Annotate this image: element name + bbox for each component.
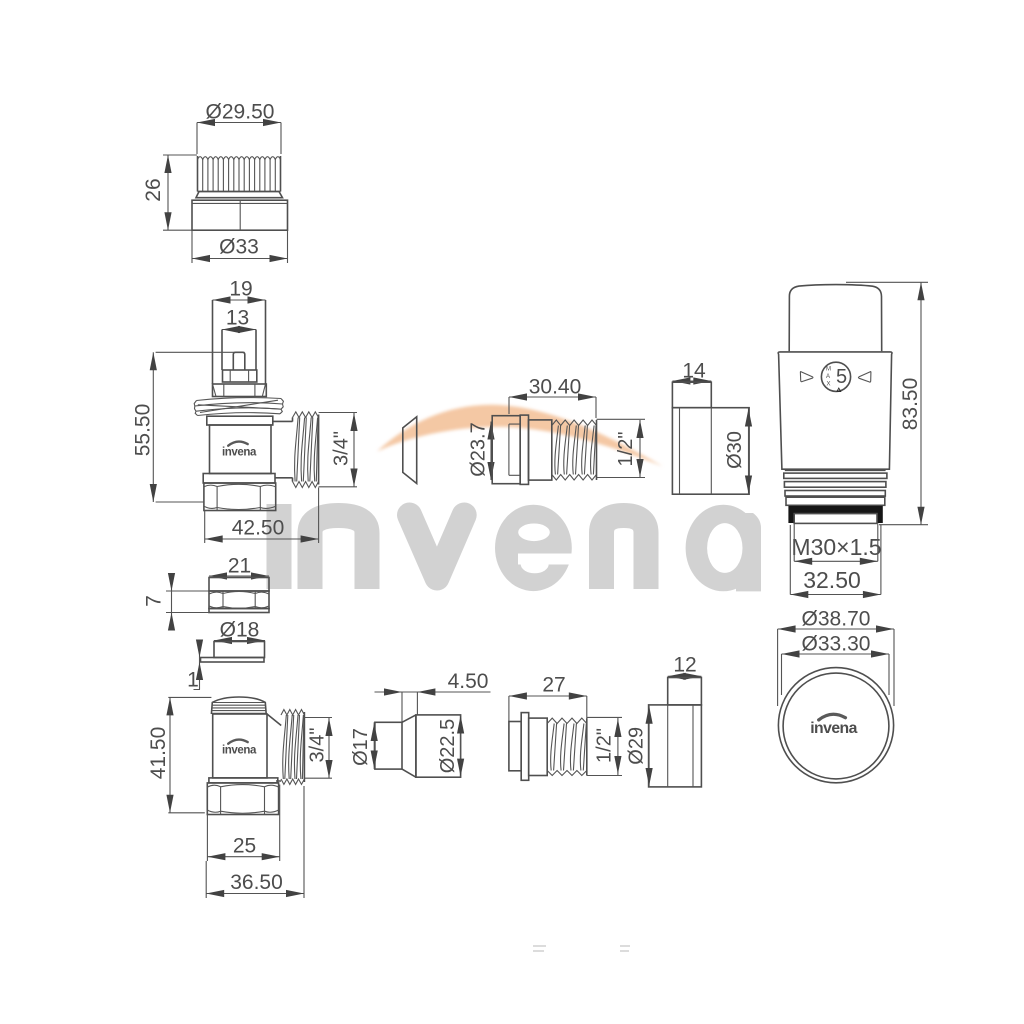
svg-text:Ø33: Ø33 — [219, 236, 259, 259]
svg-text:36.50: 36.50 — [230, 871, 283, 894]
svg-text:4.50: 4.50 — [448, 670, 489, 693]
svg-text:26: 26 — [142, 178, 165, 201]
svg-text:Ø38.70: Ø38.70 — [802, 608, 871, 631]
svg-text:Ø18: Ø18 — [220, 619, 260, 642]
svg-text:30.40: 30.40 — [529, 376, 582, 399]
svg-text:1/2": 1/2" — [615, 432, 637, 467]
svg-text:42.50: 42.50 — [232, 517, 285, 540]
svg-text:Ø17: Ø17 — [350, 728, 372, 766]
svg-text:13: 13 — [226, 307, 249, 330]
svg-text:5: 5 — [836, 366, 847, 388]
svg-text:Ø23.7: Ø23.7 — [468, 422, 490, 476]
svg-text:27: 27 — [542, 674, 565, 697]
svg-text:25: 25 — [233, 835, 256, 858]
svg-text:41.50: 41.50 — [147, 727, 170, 780]
svg-text:Ø33.30: Ø33.30 — [802, 633, 871, 656]
svg-text:Ø30: Ø30 — [724, 431, 746, 469]
svg-text:83.50: 83.50 — [899, 378, 922, 431]
svg-text:7: 7 — [143, 595, 166, 607]
svg-text:3/4": 3/4" — [331, 431, 353, 466]
svg-text:M30×1.5: M30×1.5 — [791, 534, 881, 560]
svg-text:1/2": 1/2" — [594, 728, 616, 763]
svg-text:M: M — [826, 367, 831, 373]
svg-text:21: 21 — [228, 555, 251, 578]
svg-text:3/4": 3/4" — [307, 728, 329, 763]
svg-text:32.50: 32.50 — [803, 567, 861, 593]
svg-text:Ø22.5: Ø22.5 — [437, 719, 459, 773]
svg-text:X: X — [826, 381, 830, 387]
svg-text:A: A — [826, 374, 830, 380]
svg-text:1: 1 — [187, 669, 199, 692]
svg-text:55.50: 55.50 — [132, 404, 155, 457]
svg-text:Ø29: Ø29 — [626, 727, 648, 765]
